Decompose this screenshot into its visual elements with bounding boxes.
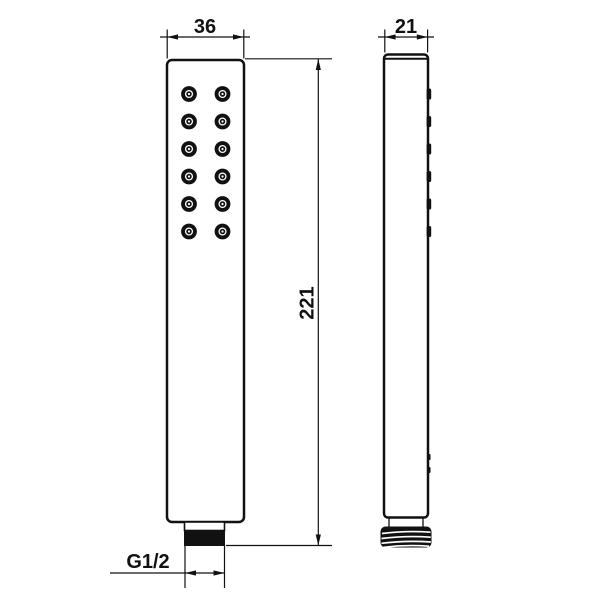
side-clip-mark (427, 467, 431, 473)
side-clip-mark (427, 454, 431, 460)
nozzle-dot (215, 224, 231, 240)
side-nozzle-profile-mark (427, 116, 432, 127)
arrowhead-up (316, 59, 321, 70)
dim-side-width-label: 21 (395, 16, 417, 38)
side-view (381, 55, 432, 548)
nozzle-dot (181, 224, 197, 240)
side-nozzle-profile-mark (427, 89, 432, 100)
arrowhead-right (233, 34, 244, 39)
inlet-collar (185, 522, 225, 531)
dim-side-width: 21 (378, 16, 434, 53)
dim-front-width: 36 (160, 16, 250, 59)
dim-front-width-label: 36 (194, 16, 216, 38)
inlet-thread-band (184, 531, 225, 547)
nozzle-dot (215, 196, 231, 212)
nozzle-dot (215, 169, 231, 185)
arrowhead-right (214, 570, 225, 575)
arrowhead-left (185, 570, 196, 575)
dim-thread-label: G1/2 (126, 551, 169, 573)
side-nozzle-profile-mark (427, 171, 432, 182)
front-body (167, 60, 244, 522)
nozzle-dot (215, 114, 231, 130)
arrowhead-right (417, 34, 428, 39)
side-nozzle-profile-mark (427, 226, 432, 237)
side-body (384, 55, 428, 518)
nozzle-dot (181, 141, 197, 157)
dim-height-label: 221 (297, 286, 319, 319)
technical-drawing-canvas: 36 21 221 G1/2 (0, 0, 600, 600)
side-nozzle-profile-mark (427, 199, 432, 210)
nozzle-dot (215, 86, 231, 102)
nozzle-dot (181, 86, 197, 102)
nozzle-dot (215, 141, 231, 157)
side-thread (381, 527, 432, 548)
drawing-svg: 36 21 221 G1/2 (0, 0, 600, 600)
front-view (167, 60, 244, 546)
nozzle-dot (181, 196, 197, 212)
arrowhead-left (167, 34, 178, 39)
side-nozzle-profile-mark (427, 144, 432, 155)
dim-thread: G1/2 (110, 546, 225, 588)
arrowhead-down (316, 535, 321, 546)
nozzle-dot (181, 114, 197, 130)
nozzle-dot (181, 169, 197, 185)
